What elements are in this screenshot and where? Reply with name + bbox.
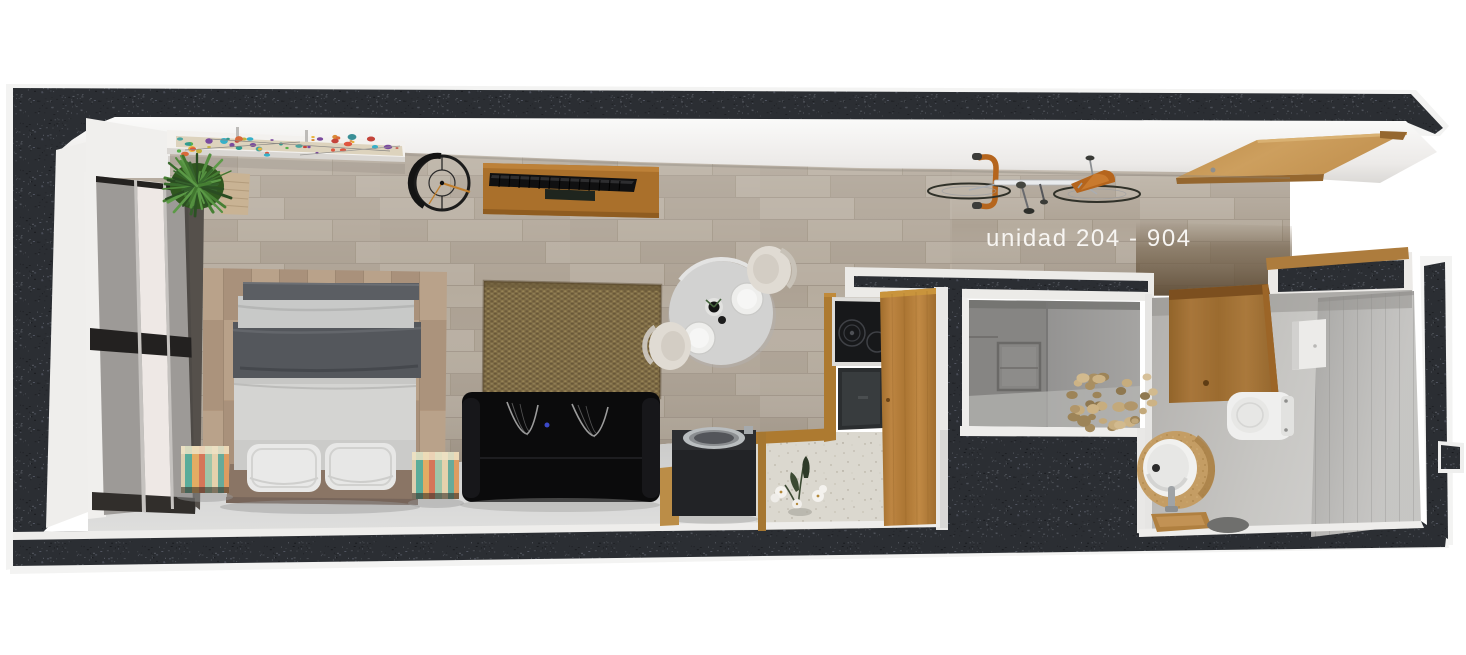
svg-text:unidad 204 - 904: unidad 204 - 904 bbox=[986, 225, 1192, 252]
